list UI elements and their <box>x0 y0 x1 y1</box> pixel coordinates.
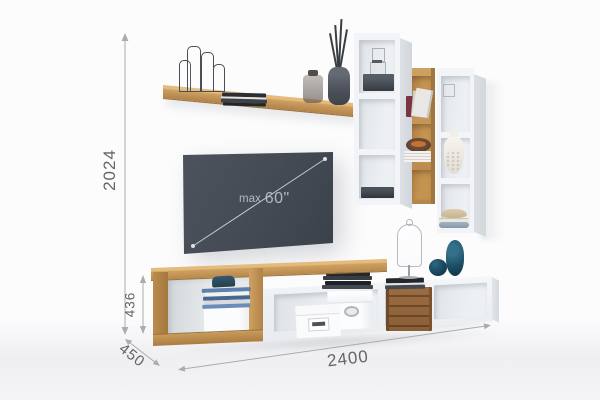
glass-jar <box>303 75 323 103</box>
teal-vase-large <box>446 240 464 276</box>
teal-pouch <box>212 275 236 287</box>
book-spine <box>385 285 425 290</box>
glass-square-decor <box>443 84 455 97</box>
binder <box>322 285 373 289</box>
dark-storage-box <box>363 74 394 91</box>
vase-body <box>328 67 350 105</box>
wire-frame <box>213 64 225 92</box>
dimension-height-label: 2024 <box>100 130 120 210</box>
teal-vase-small <box>429 259 447 276</box>
tv-label-prefix: max <box>239 194 261 208</box>
cabinet-side-panel <box>474 74 486 237</box>
bench-compartment <box>434 283 487 320</box>
arrowhead <box>140 275 146 283</box>
tv-label-size: 60" <box>265 191 290 207</box>
binder <box>323 276 372 280</box>
blue-book-stack <box>202 283 252 310</box>
bench-side-panel <box>492 277 499 323</box>
label-window <box>308 317 330 331</box>
furniture-dimension-diagram: max 60" <box>0 0 600 400</box>
wooden-crate <box>386 287 432 331</box>
vase-with-branches <box>326 22 353 105</box>
dark-tray <box>361 187 394 198</box>
decorative-bowl <box>406 138 431 152</box>
black-binder-stack <box>322 272 373 290</box>
glass-cloche <box>397 222 422 280</box>
cabinet-compartment <box>359 99 395 149</box>
storage-box-with-label <box>295 304 341 338</box>
arrowhead <box>122 33 129 41</box>
shelf-book-stack <box>221 92 267 106</box>
beige-bowl <box>441 209 467 218</box>
wire-decor-sculpture <box>179 46 229 92</box>
bowl-and-plate-stack <box>439 209 469 228</box>
dimension-bench-height-label: 436 <box>123 278 138 332</box>
cloche-dome <box>397 224 422 267</box>
label-bar <box>312 322 325 327</box>
cloche-stand-base <box>399 276 419 279</box>
tv-max-size-label: max 60" <box>239 191 290 207</box>
blue-plate <box>439 222 469 228</box>
paper-stack <box>404 151 431 162</box>
book-spine <box>202 303 250 309</box>
cabinet-side-panel <box>400 38 412 209</box>
wire-frame <box>187 46 201 92</box>
book-spine <box>223 102 266 106</box>
white-carved-vase <box>444 136 464 174</box>
